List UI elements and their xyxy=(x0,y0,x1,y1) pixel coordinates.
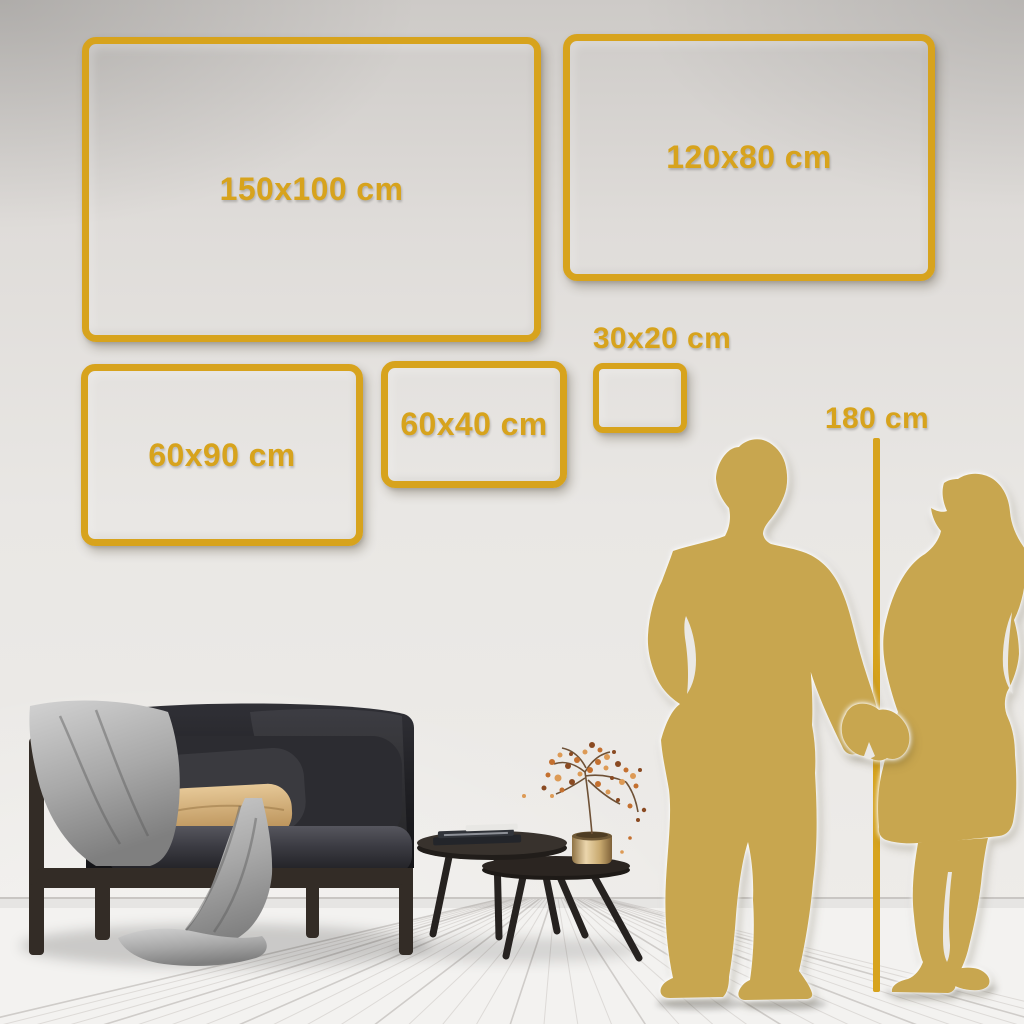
size-label-150x100: 150x100 cm xyxy=(220,171,404,208)
size-frame-60x40: 60x40 cm xyxy=(381,361,567,488)
height-label: 180 cm xyxy=(797,402,957,436)
size-frame-150x100: 150x100 cm xyxy=(82,37,541,342)
size-label-60x40: 60x40 cm xyxy=(400,406,547,443)
books xyxy=(433,823,522,845)
size-guide-scene: 150x100 cm 120x80 cm 60x90 cm 60x40 cm 3… xyxy=(0,0,1024,1024)
size-frame-30x20 xyxy=(593,363,687,433)
size-label-30x20: 30x20 cm xyxy=(578,322,746,356)
size-frame-120x80: 120x80 cm xyxy=(563,34,935,281)
size-label-120x80: 120x80 cm xyxy=(666,139,832,176)
brass-vase xyxy=(572,832,612,865)
size-label-60x90: 60x90 cm xyxy=(148,437,295,474)
wall-floor-seam xyxy=(0,897,1024,899)
size-frame-60x90: 60x90 cm xyxy=(81,364,363,546)
